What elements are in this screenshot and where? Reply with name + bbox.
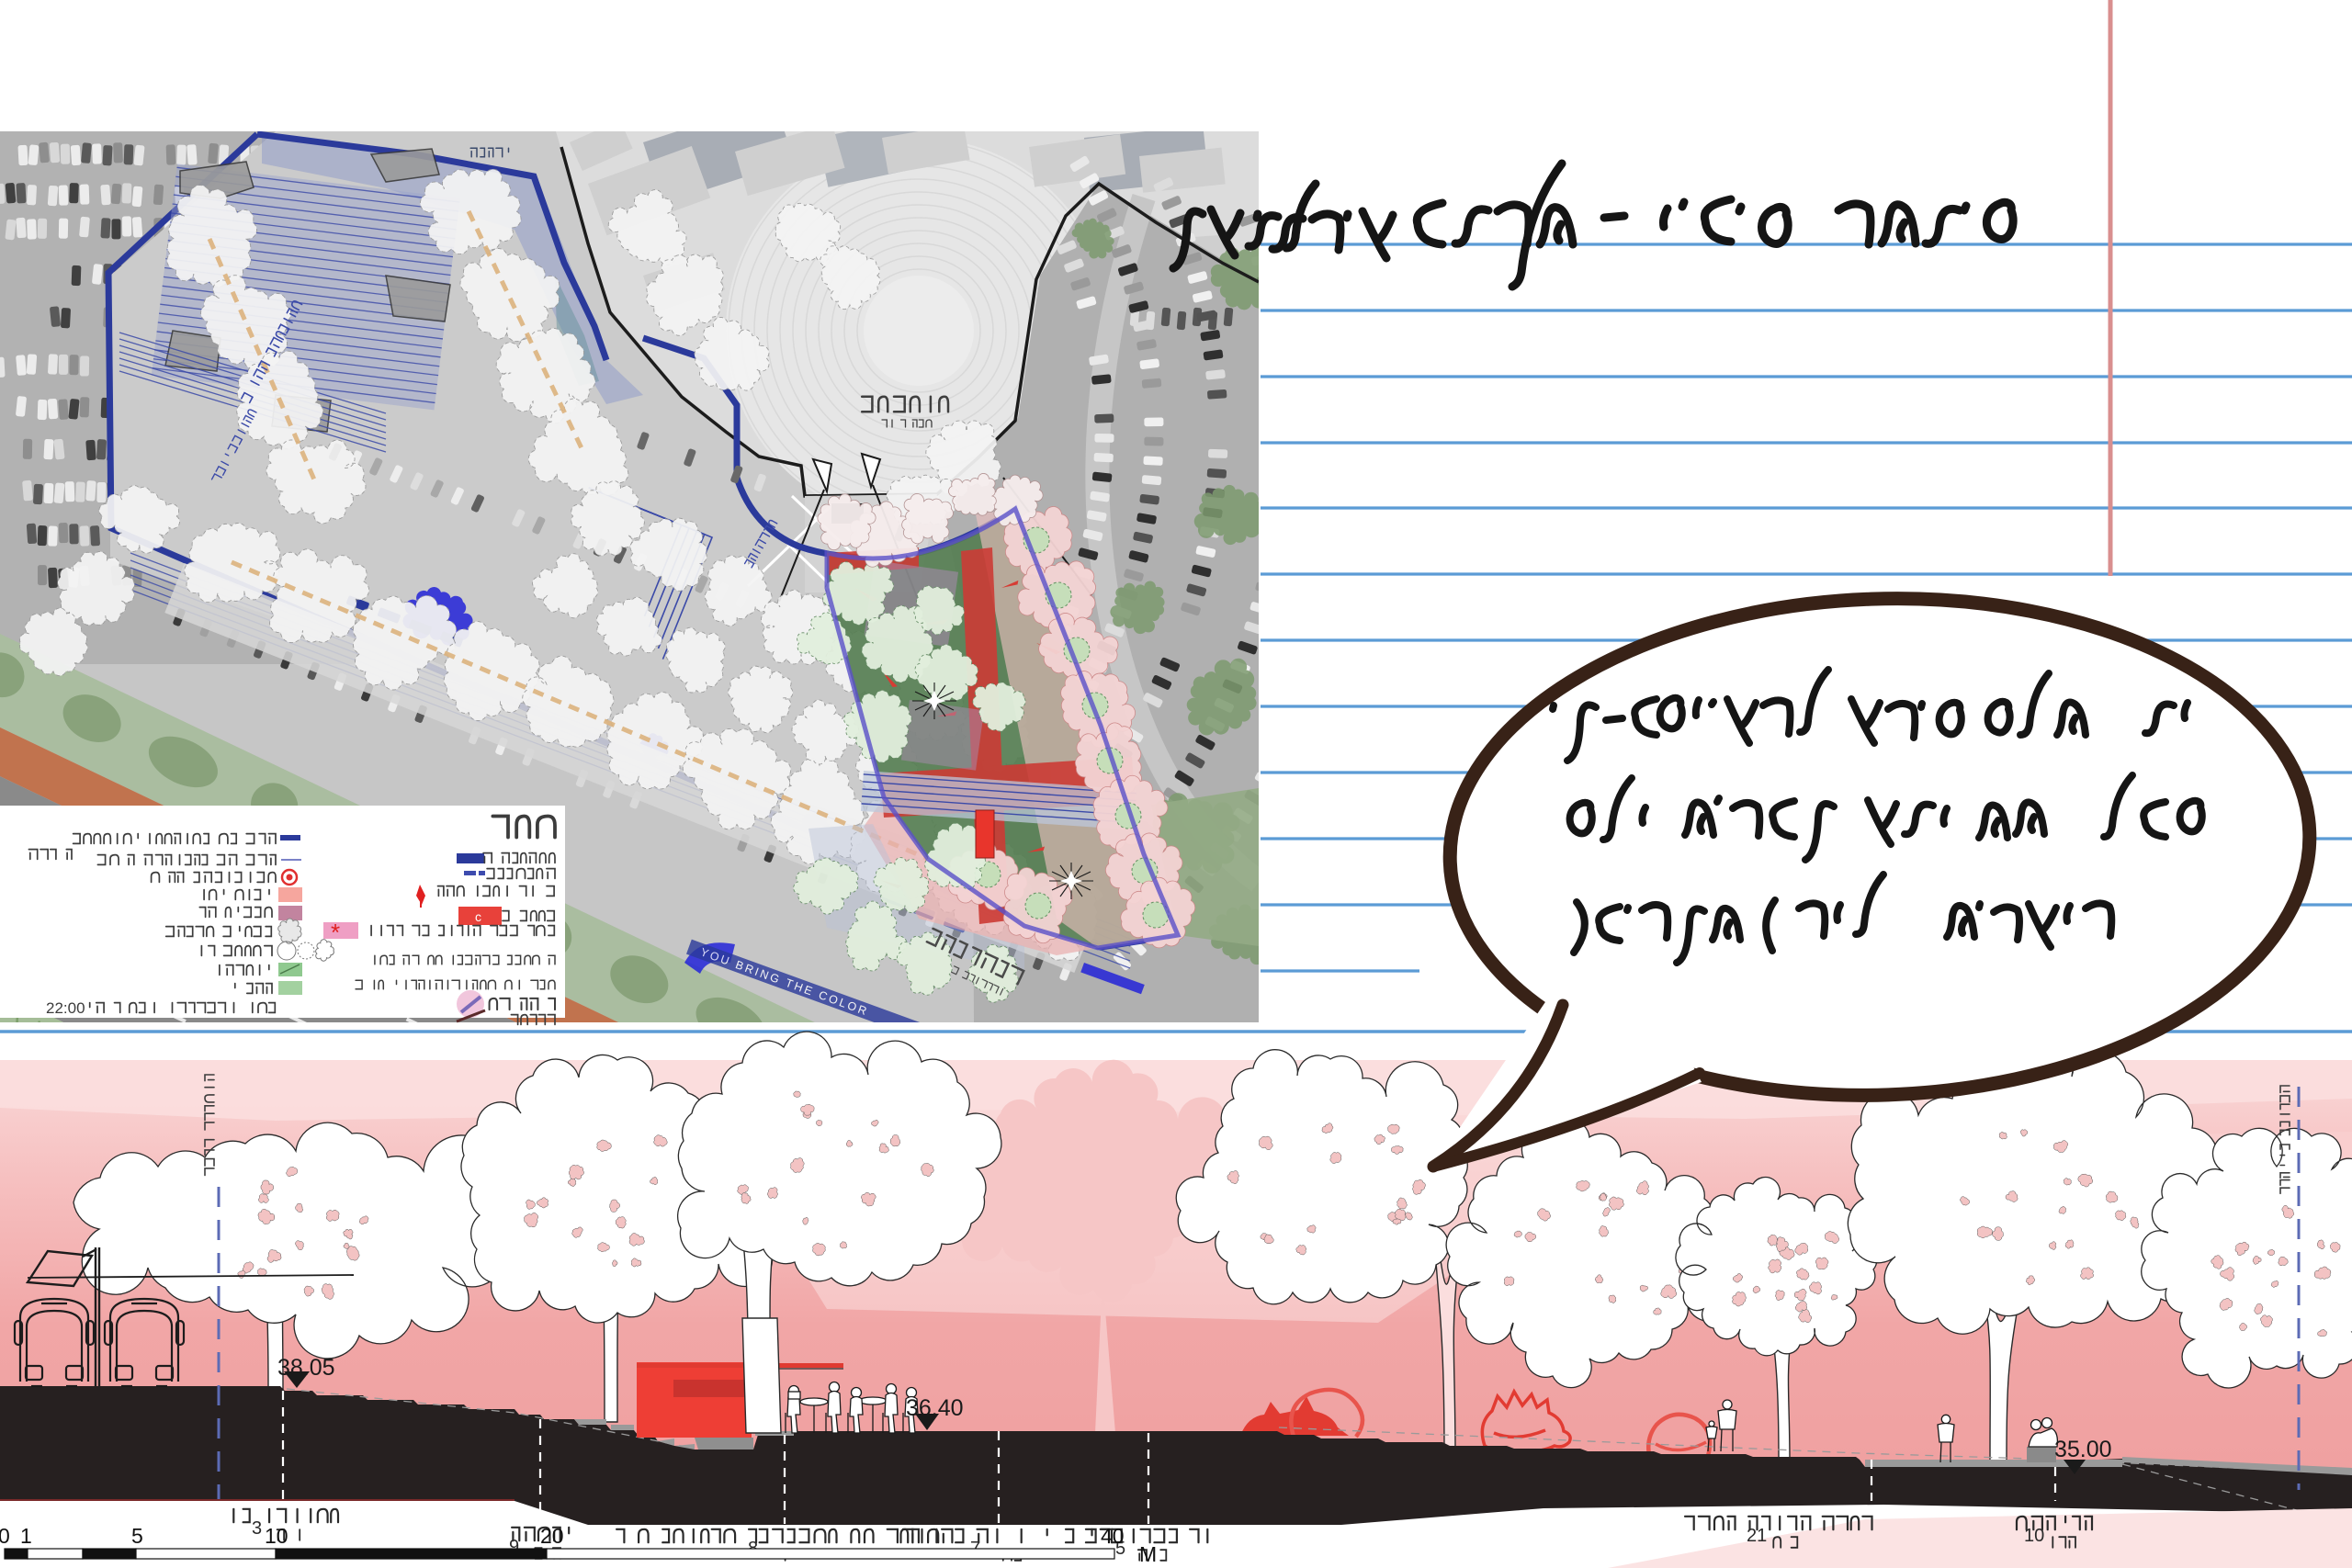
svg-text:22:00: 22:00 (46, 999, 85, 1017)
svg-text:M: M (1139, 1542, 1157, 1566)
svg-text:10: 10 (265, 1524, 288, 1548)
svg-text:0: 0 (0, 1524, 10, 1548)
svg-text:20: 20 (540, 1524, 564, 1548)
svg-text:35.00: 35.00 (2054, 1437, 2112, 1462)
svg-text:1: 1 (20, 1524, 32, 1548)
svg-text:21: 21 (1747, 1526, 1767, 1546)
svg-text:38.05: 38.05 (277, 1355, 335, 1381)
svg-text:5: 5 (131, 1524, 143, 1548)
svg-text:10: 10 (2024, 1526, 2044, 1546)
svg-text:3: 3 (252, 1518, 262, 1539)
svg-text:*: * (331, 919, 340, 946)
svg-text:c: c (475, 909, 481, 924)
svg-text:40: 40 (1101, 1524, 1125, 1548)
